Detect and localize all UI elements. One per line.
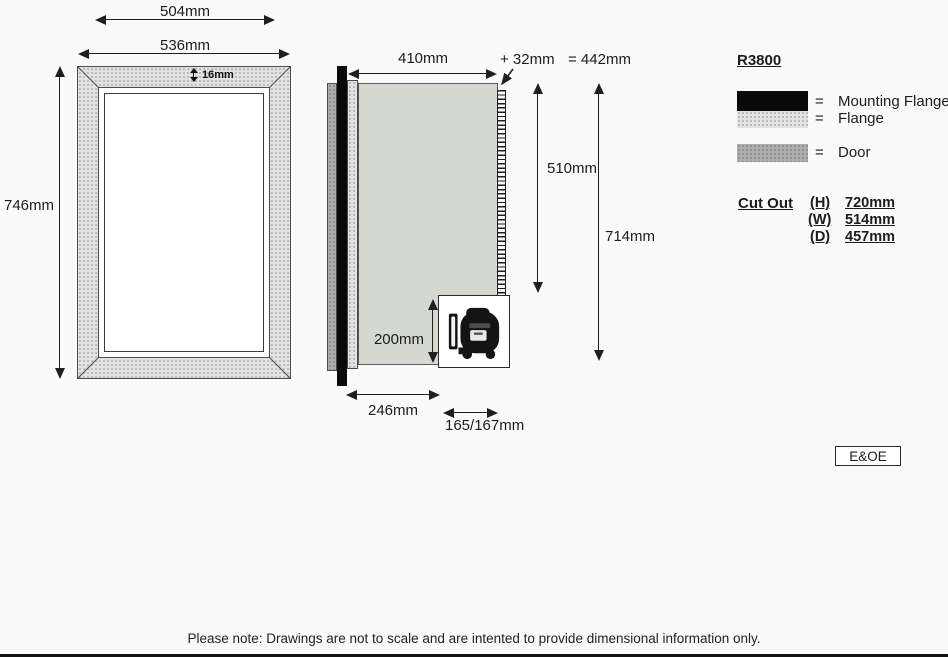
dim-label-plus32: + 32mm [500,51,555,68]
legend-swatch-flange [737,111,808,128]
eoe-box: E&OE [835,446,901,466]
dim-label-410: 410mm [373,50,473,67]
dim-label-200: 200mm [372,331,424,348]
dim-label-246: 246mm [350,402,436,419]
dim-label-510: 510mm [547,160,597,177]
dim-label-eq442: = 442mm [568,51,631,68]
side-view: 410mm + 32mm = 442mm 510mm 714mm 200mm 2… [0,0,680,450]
legend-label-flange: Flange [838,110,884,127]
legend-swatch-mounting-flange [737,91,808,111]
cutout-value-h: 720mm [845,195,895,211]
dim-label-714: 714mm [605,228,655,245]
compressor-box [438,295,510,368]
cutout-value-w: 514mm [845,212,895,228]
compressor-icon [445,302,503,362]
footer-note: Please note: Drawings are not to scale a… [0,631,948,646]
legend-swatch-door [737,144,808,162]
legend-label-door: Door [838,144,871,161]
legend-eq-door: = [815,144,824,161]
dim-arrow-714 [592,83,605,361]
model-number: R3800 [737,52,781,69]
legend-eq-mounting-flange: = [815,93,824,110]
dim-arrow-246 [346,388,440,401]
dim-arrow-510 [531,83,544,293]
legend-eq-flange: = [815,110,824,127]
cutout-value-d: 457mm [845,229,895,245]
dim-label-165-167: 165/167mm [445,417,524,434]
flange-strip [347,80,358,369]
dim-arrow-200 [426,299,439,363]
eoe-label: E&OE [849,449,887,464]
cutout-title: Cut Out [738,195,793,212]
cutout-key-h: (H) [810,195,830,211]
dim-arrow-plus32 [494,67,518,91]
legend: R3800 = Mounting Flange = Flange = Door … [700,0,948,480]
mounting-flange-bar [337,66,347,386]
legend-label-mounting-flange: Mounting Flange [838,93,948,110]
cutout-key-d: (D) [810,229,830,245]
dim-arrow-410 [348,67,497,80]
door-section-strip [327,83,337,371]
condenser-coil [497,90,506,297]
technical-drawing-page: 504mm 536mm 746mm 16mm [0,0,948,657]
cutout-key-w: (W) [808,212,831,228]
